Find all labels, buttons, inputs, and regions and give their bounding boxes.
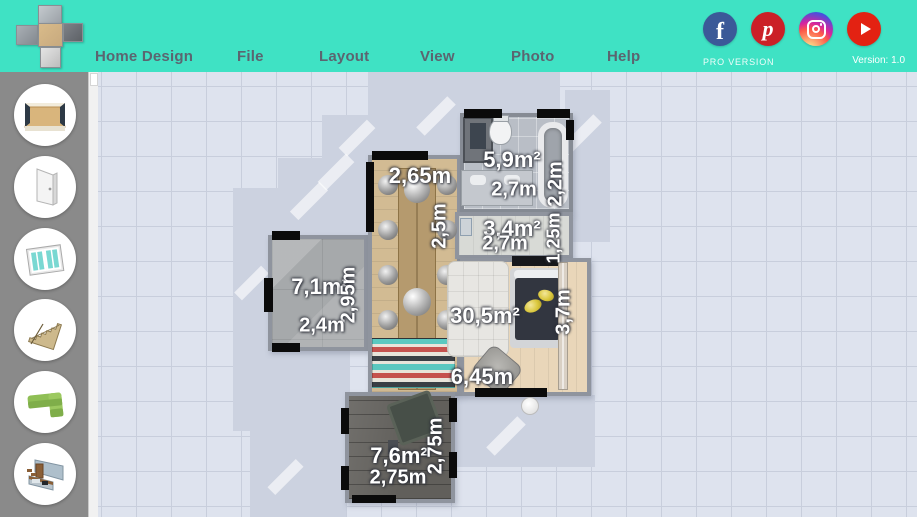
menu-view[interactable]: View	[420, 48, 455, 65]
washer[interactable]	[460, 218, 472, 236]
floor-lamp[interactable]	[521, 397, 539, 415]
chair[interactable]	[378, 220, 398, 240]
hallway-width-label: 2,7m	[482, 233, 528, 256]
window-segment[interactable]	[341, 466, 349, 490]
living-width-label: 6,45m	[451, 364, 513, 390]
logo-tile	[38, 23, 63, 47]
window-segment[interactable]	[464, 109, 502, 118]
pinterest-glyph: p	[763, 16, 774, 42]
dining-height-label: 2,5m	[429, 203, 452, 249]
version-label: Version: 1.0	[852, 55, 905, 66]
logo-tile	[63, 23, 83, 42]
menu-home-design[interactable]: Home Design	[95, 48, 193, 65]
bathroom-width-label: 2,7m	[491, 179, 537, 202]
window-segment[interactable]	[566, 120, 574, 140]
logo-tile	[38, 5, 62, 25]
room-icon	[23, 93, 67, 137]
bathroom-area-label: 5,9m²	[483, 147, 540, 173]
window-segment[interactable]	[341, 408, 349, 434]
logo-tile	[16, 25, 38, 45]
menu-help[interactable]: Help	[607, 48, 640, 65]
toilet[interactable]	[489, 118, 512, 145]
stairs-icon	[23, 308, 67, 352]
door-icon	[23, 165, 67, 209]
instagram-icon[interactable]	[799, 12, 833, 46]
tool-sidebar	[0, 72, 88, 517]
bathroom-height-label: 2,2m	[545, 161, 568, 207]
kitchen-tool-button[interactable]	[14, 443, 76, 505]
bedroom-area-label: 7,6m²	[370, 443, 427, 469]
home-design-app: 2,65m 2,5m 5,9m² 2,7m 2,2m 3,4m² 2,7m 1,…	[0, 0, 917, 517]
kitchen-icon	[23, 452, 67, 496]
chair[interactable]	[378, 265, 398, 285]
sofa-icon	[23, 380, 67, 424]
window-segment[interactable]	[352, 495, 396, 503]
living-height-label: 3,7m	[553, 289, 576, 335]
menu-file[interactable]: File	[237, 48, 264, 65]
shower-tray	[470, 123, 486, 149]
facebook-icon[interactable]: f	[703, 12, 737, 46]
dining-width-label: 2,65m	[389, 163, 451, 189]
hallway-height-label: 1,25m	[544, 212, 565, 263]
instagram-camera-shape	[807, 20, 826, 39]
instagram-lens-shape	[812, 25, 820, 33]
header-bar: Home Design File Layout View Photo Help …	[0, 0, 917, 72]
window-segment[interactable]	[372, 151, 428, 160]
bedroom-width-label: 2,75m	[370, 467, 427, 490]
youtube-icon[interactable]	[847, 12, 881, 46]
window-segment[interactable]	[272, 343, 300, 352]
plan-canvas[interactable]: 2,65m 2,5m 5,9m² 2,7m 2,2m 3,4m² 2,7m 1,…	[98, 72, 917, 517]
window-icon	[23, 237, 67, 281]
window-segment[interactable]	[449, 398, 457, 422]
wall-shadow	[250, 392, 346, 517]
living-area-label: 30,5m²	[450, 303, 520, 329]
menu-photo[interactable]: Photo	[511, 48, 555, 65]
menu-layout[interactable]: Layout	[319, 48, 369, 65]
room-tool-button[interactable]	[14, 84, 76, 146]
pinterest-icon[interactable]: p	[751, 12, 785, 46]
door-tool-button[interactable]	[14, 156, 76, 218]
youtube-play-shape	[861, 23, 871, 35]
vertical-scrollbar-thumb[interactable]	[90, 73, 98, 86]
window-segment[interactable]	[272, 231, 300, 240]
vertical-scrollbar[interactable]	[88, 72, 98, 517]
window-segment[interactable]	[449, 452, 457, 478]
sink-basin	[470, 175, 486, 185]
window-tool-button[interactable]	[14, 228, 76, 290]
pro-version-label: PRO VERSION	[703, 57, 774, 67]
table-decor[interactable]	[403, 288, 431, 316]
rug[interactable]	[372, 338, 455, 388]
bedroom-height-label: 2,75m	[425, 418, 448, 475]
door-segment[interactable]	[264, 278, 273, 312]
sofa-tool-button[interactable]	[14, 371, 76, 433]
window-segment[interactable]	[537, 109, 570, 118]
instagram-dot-shape	[820, 23, 823, 26]
app-logo	[16, 3, 80, 69]
storage-width-label: 2,4m	[299, 315, 345, 338]
logo-tile	[40, 47, 61, 68]
window-segment[interactable]	[366, 162, 374, 232]
facebook-glyph: f	[716, 19, 724, 46]
stairs-tool-button[interactable]	[14, 299, 76, 361]
chair[interactable]	[378, 310, 398, 330]
